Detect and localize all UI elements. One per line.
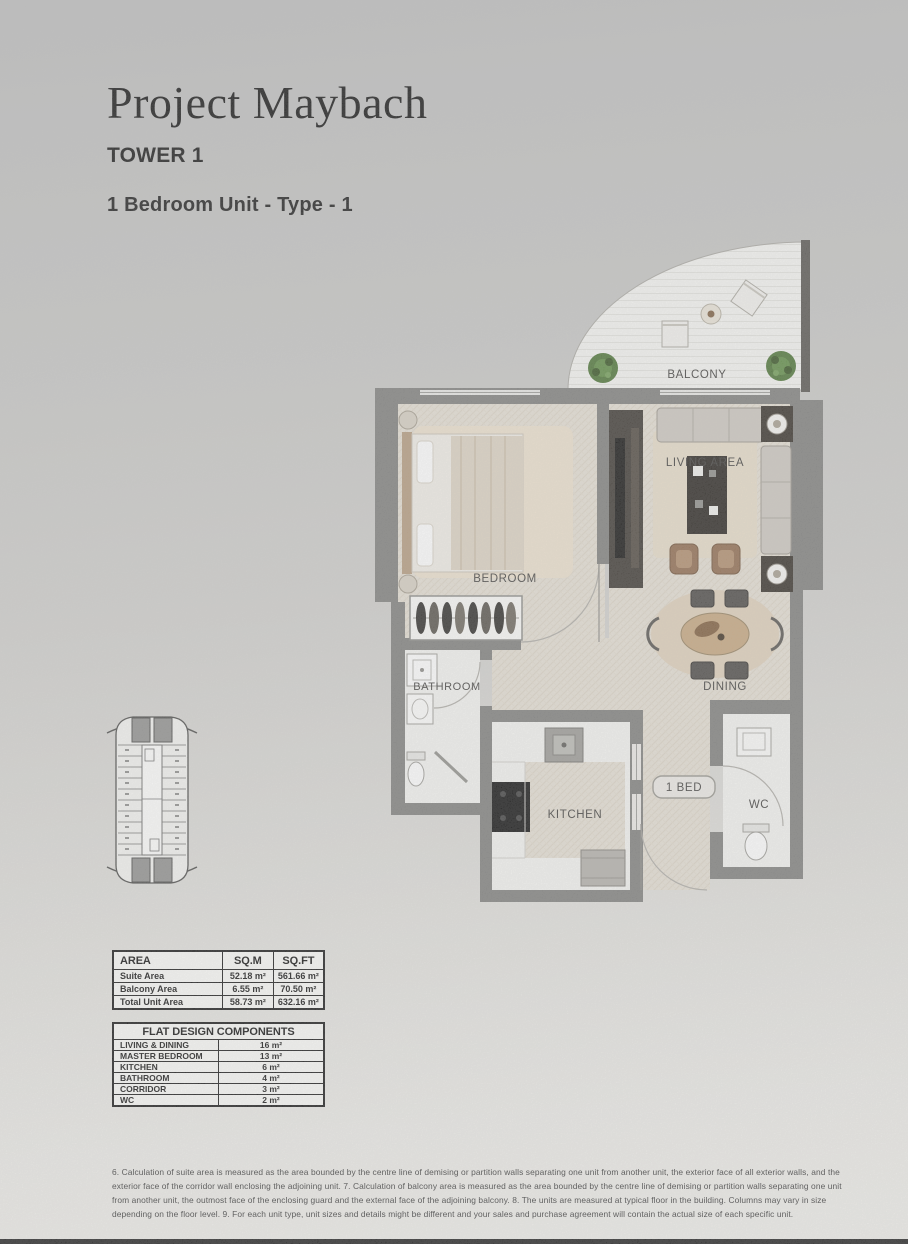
table-row: Total Unit Area 58.73 m² 632.16 m² [113,996,324,1010]
room-label-wc: WC [749,799,769,811]
component-label: CORRIDOR [113,1084,219,1095]
unit-tag: 1 BED [653,776,715,798]
disclaimer-text: 6. Calculation of suite area is measured… [112,1166,847,1221]
area-row-label: Balcony Area [113,983,223,996]
plant-icon [766,351,796,381]
component-value: 13 m² [219,1051,325,1062]
balcony-chair [662,321,688,347]
component-label: BATHROOM [113,1073,219,1084]
key-plan-corridor [142,745,162,855]
component-label: WC [113,1095,219,1107]
table-row: Balcony Area 6.55 m² 70.50 m² [113,983,324,996]
table-row: CORRIDOR 3 m² [113,1084,324,1095]
table-row: LIVING & DINING 16 m² [113,1040,324,1051]
wardrobe [410,596,522,640]
balcony-edge-wall [801,240,810,392]
area-table: AREA SQ.M SQ.FT Suite Area 52.18 m² 561.… [112,950,325,1010]
component-value: 6 m² [219,1062,325,1073]
component-label: LIVING & DINING [113,1040,219,1051]
table-row: WC 2 m² [113,1095,324,1107]
key-plan-corner-unit [132,858,150,882]
area-row-label: Total Unit Area [113,996,223,1010]
page-title: Project Maybach [107,80,427,126]
bedroom-furniture [399,411,573,593]
area-table-header-area: AREA [113,951,223,970]
area-row-sqft: 70.50 m² [273,983,324,996]
room-label-dining: DINING [703,681,747,693]
living-furniture [653,406,793,592]
table-row: Suite Area 52.18 m² 561.66 m² [113,970,324,983]
room-label-living: LIVING AREA [666,457,744,469]
components-table-header-row: FLAT DESIGN COMPONENTS [113,1023,324,1040]
key-plan-corner-unit [132,718,150,742]
unit-tag-label: 1 BED [666,782,702,794]
component-value: 4 m² [219,1073,325,1084]
area-row-label: Suite Area [113,970,223,983]
room-label-bathroom: BATHROOM [413,681,481,693]
balcony-table [701,304,721,324]
area-row-sqm: 52.18 m² [223,970,274,983]
table-row: KITCHEN 6 m² [113,1062,324,1073]
area-row-sqft: 632.16 m² [273,996,324,1010]
component-label: MASTER BEDROOM [113,1051,219,1062]
table-row: BATHROOM 4 m² [113,1073,324,1084]
balcony-zone: BALCONY [568,240,810,392]
area-row-sqm: 58.73 m² [223,996,274,1010]
key-plan-corner-unit [154,718,172,742]
components-table: FLAT DESIGN COMPONENTS LIVING & DINING 1… [112,1022,325,1107]
component-value: 3 m² [219,1084,325,1095]
table-row: MASTER BEDROOM 13 m² [113,1051,324,1062]
component-value: 2 m² [219,1095,325,1107]
area-table-header-sqft: SQ.FT [273,951,324,970]
components-table-title: FLAT DESIGN COMPONENTS [113,1023,324,1040]
area-table-header-row: AREA SQ.M SQ.FT [113,951,324,970]
bottom-edge-bar [0,1239,908,1244]
tv-cabinet [609,410,643,588]
tower-label: TOWER 1 [107,144,427,168]
brochure-page: Project Maybach TOWER 1 1 Bedroom Unit -… [0,0,908,1244]
room-label-balcony: BALCONY [667,369,726,381]
plant-icon [588,353,618,383]
component-value: 16 m² [219,1040,325,1051]
area-row-sqm: 6.55 m² [223,983,274,996]
component-label: KITCHEN [113,1062,219,1073]
room-label-kitchen: KITCHEN [548,809,603,821]
key-plan [103,703,201,897]
corridor-floor [492,638,653,722]
room-label-bedroom: BEDROOM [473,573,537,585]
unit-type-label: 1 Bedroom Unit - Type - 1 [107,194,427,217]
area-row-sqft: 561.66 m² [273,970,324,983]
header: Project Maybach TOWER 1 1 Bedroom Unit -… [107,80,427,217]
key-plan-corner-unit [154,858,172,882]
area-table-header-sqm: SQ.M [223,951,274,970]
floor-plan: BALCONY [375,238,835,908]
